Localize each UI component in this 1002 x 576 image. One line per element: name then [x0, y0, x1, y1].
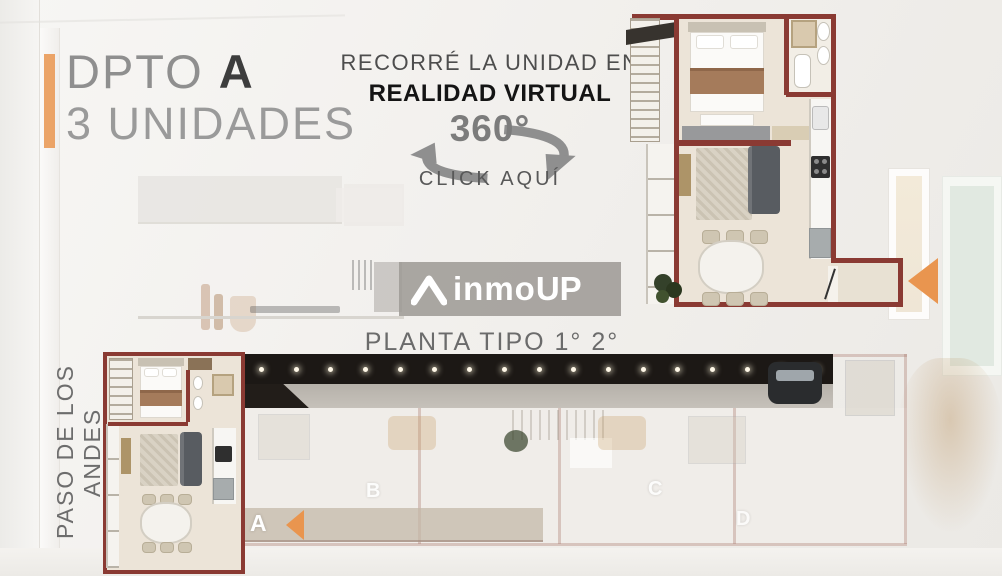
street-label: PASO DE LOS ANDES [52, 336, 86, 568]
fridge [809, 228, 831, 258]
vr-banner-line1: RECORRÉ LA UNIDAD EN [340, 50, 640, 76]
car-windshield [776, 370, 814, 381]
unit-a-detail-plan [626, 6, 956, 312]
sofa [748, 146, 780, 214]
rug [696, 148, 752, 220]
ceiling-light [328, 367, 333, 372]
360-badge: 360° [340, 108, 640, 150]
unit-b-label: B [366, 480, 380, 503]
vr-click-here-cta[interactable]: CLICK AQUÍ [340, 168, 640, 191]
ceiling-light [259, 367, 264, 372]
background-kitchen-cabinets [138, 176, 342, 224]
background-kitchen-shelf [336, 188, 402, 222]
background-bottle [214, 294, 223, 330]
unit-d-label: D [736, 508, 750, 531]
sofa [180, 432, 202, 486]
tv-cabinet [121, 438, 131, 474]
dining-chair [178, 542, 192, 553]
dining-chair [726, 292, 744, 306]
vr-banner-line2: REALIDAD VIRTUAL [340, 80, 640, 108]
wardrobe [188, 358, 212, 370]
ceiling-light [432, 367, 437, 372]
ceiling-light [571, 367, 576, 372]
cabinet [772, 126, 814, 140]
kitchen-sink [812, 106, 829, 130]
balcony [106, 424, 119, 568]
pillow [696, 35, 724, 49]
pillow [144, 368, 159, 377]
dining-chair [142, 542, 156, 553]
cooktop [811, 156, 830, 178]
bed-ghost [258, 414, 310, 460]
ceiling-light [502, 367, 507, 372]
ceiling-light [745, 367, 750, 372]
dining-chair [702, 292, 720, 306]
toilet [817, 22, 830, 41]
wall [186, 370, 190, 422]
brand-name-suffix: UP [536, 270, 582, 307]
garage-corridor [245, 354, 833, 384]
bed-bench [700, 114, 754, 126]
page-title: DPTO A [66, 44, 253, 99]
pillow [162, 368, 177, 377]
page-subtitle: 3 UNIDADES [66, 98, 356, 150]
dining-chair [160, 542, 174, 553]
dining-chair [178, 494, 192, 505]
building-floor-plan: A B C D [100, 350, 912, 576]
wardrobe [682, 126, 770, 140]
ceiling-light [537, 367, 542, 372]
rug [140, 434, 178, 486]
entry-arrow-icon [908, 258, 938, 304]
page: DPTO A 3 UNIDADES RECORRÉ LA UNIDAD EN R… [0, 0, 1002, 576]
ceiling-light [641, 367, 646, 372]
background-decanter [230, 296, 256, 332]
wall [786, 92, 831, 97]
background-picture-art [950, 186, 994, 366]
background-knife-rack [352, 260, 376, 290]
bed-headboard [138, 358, 184, 366]
ceiling-light [606, 367, 611, 372]
dining-chair [750, 292, 768, 306]
brand-name-main: inmo [453, 270, 536, 307]
cooktop [215, 446, 232, 462]
wall-ghost [245, 543, 907, 546]
page-title-prefix: DPTO [66, 45, 219, 98]
wall-ghost [833, 354, 907, 357]
house-icon [411, 272, 447, 306]
dining-table-ghost [598, 416, 646, 450]
bed-headboard [688, 22, 766, 32]
dining-table [698, 240, 764, 294]
pillow [730, 35, 758, 49]
dining-table [140, 502, 192, 544]
bathtub [794, 54, 811, 88]
ceiling-light [467, 367, 472, 372]
title-accent-bar [44, 54, 55, 148]
tv-cabinet [679, 154, 691, 196]
brand-watermark: inmoUP [399, 262, 621, 316]
background-cooktop [250, 306, 340, 313]
shower [212, 374, 234, 396]
wall-ghost [904, 354, 907, 544]
bed-blanket [690, 68, 764, 94]
dining-chair [750, 230, 768, 244]
bidet [817, 46, 830, 65]
background-appliance [374, 262, 402, 312]
stairs [109, 358, 133, 420]
bed-blanket [140, 390, 182, 406]
ceiling-light [710, 367, 715, 372]
bidet [193, 396, 203, 410]
unit-c-label: C [648, 478, 662, 501]
dining-table-ghost [388, 416, 436, 450]
fridge [213, 478, 234, 500]
unit-a-label: A [250, 510, 267, 537]
bed-ghost [845, 360, 895, 416]
toilet [193, 376, 203, 390]
corridor-apron [245, 384, 833, 408]
background-ceiling-line [0, 14, 345, 23]
background-bottle [201, 284, 210, 330]
background-chair-blur [898, 358, 1002, 534]
shower [791, 20, 817, 48]
background-wall-band [0, 0, 40, 576]
background-counter-edge [138, 316, 404, 319]
wall [108, 422, 188, 426]
ceiling-light [398, 367, 403, 372]
vr-banner[interactable]: RECORRÉ LA UNIDAD EN REALIDAD VIRTUAL 36… [340, 50, 640, 190]
brand-name: inmoUP [453, 270, 582, 308]
ceiling-light [363, 367, 368, 372]
page-title-letter: A [219, 45, 253, 98]
ceiling-light [294, 367, 299, 372]
entry-hall [831, 258, 903, 307]
plant [656, 290, 669, 303]
parked-car [768, 362, 822, 404]
bed-ghost [688, 416, 746, 464]
ceiling-light [675, 367, 680, 372]
plant [504, 430, 528, 452]
